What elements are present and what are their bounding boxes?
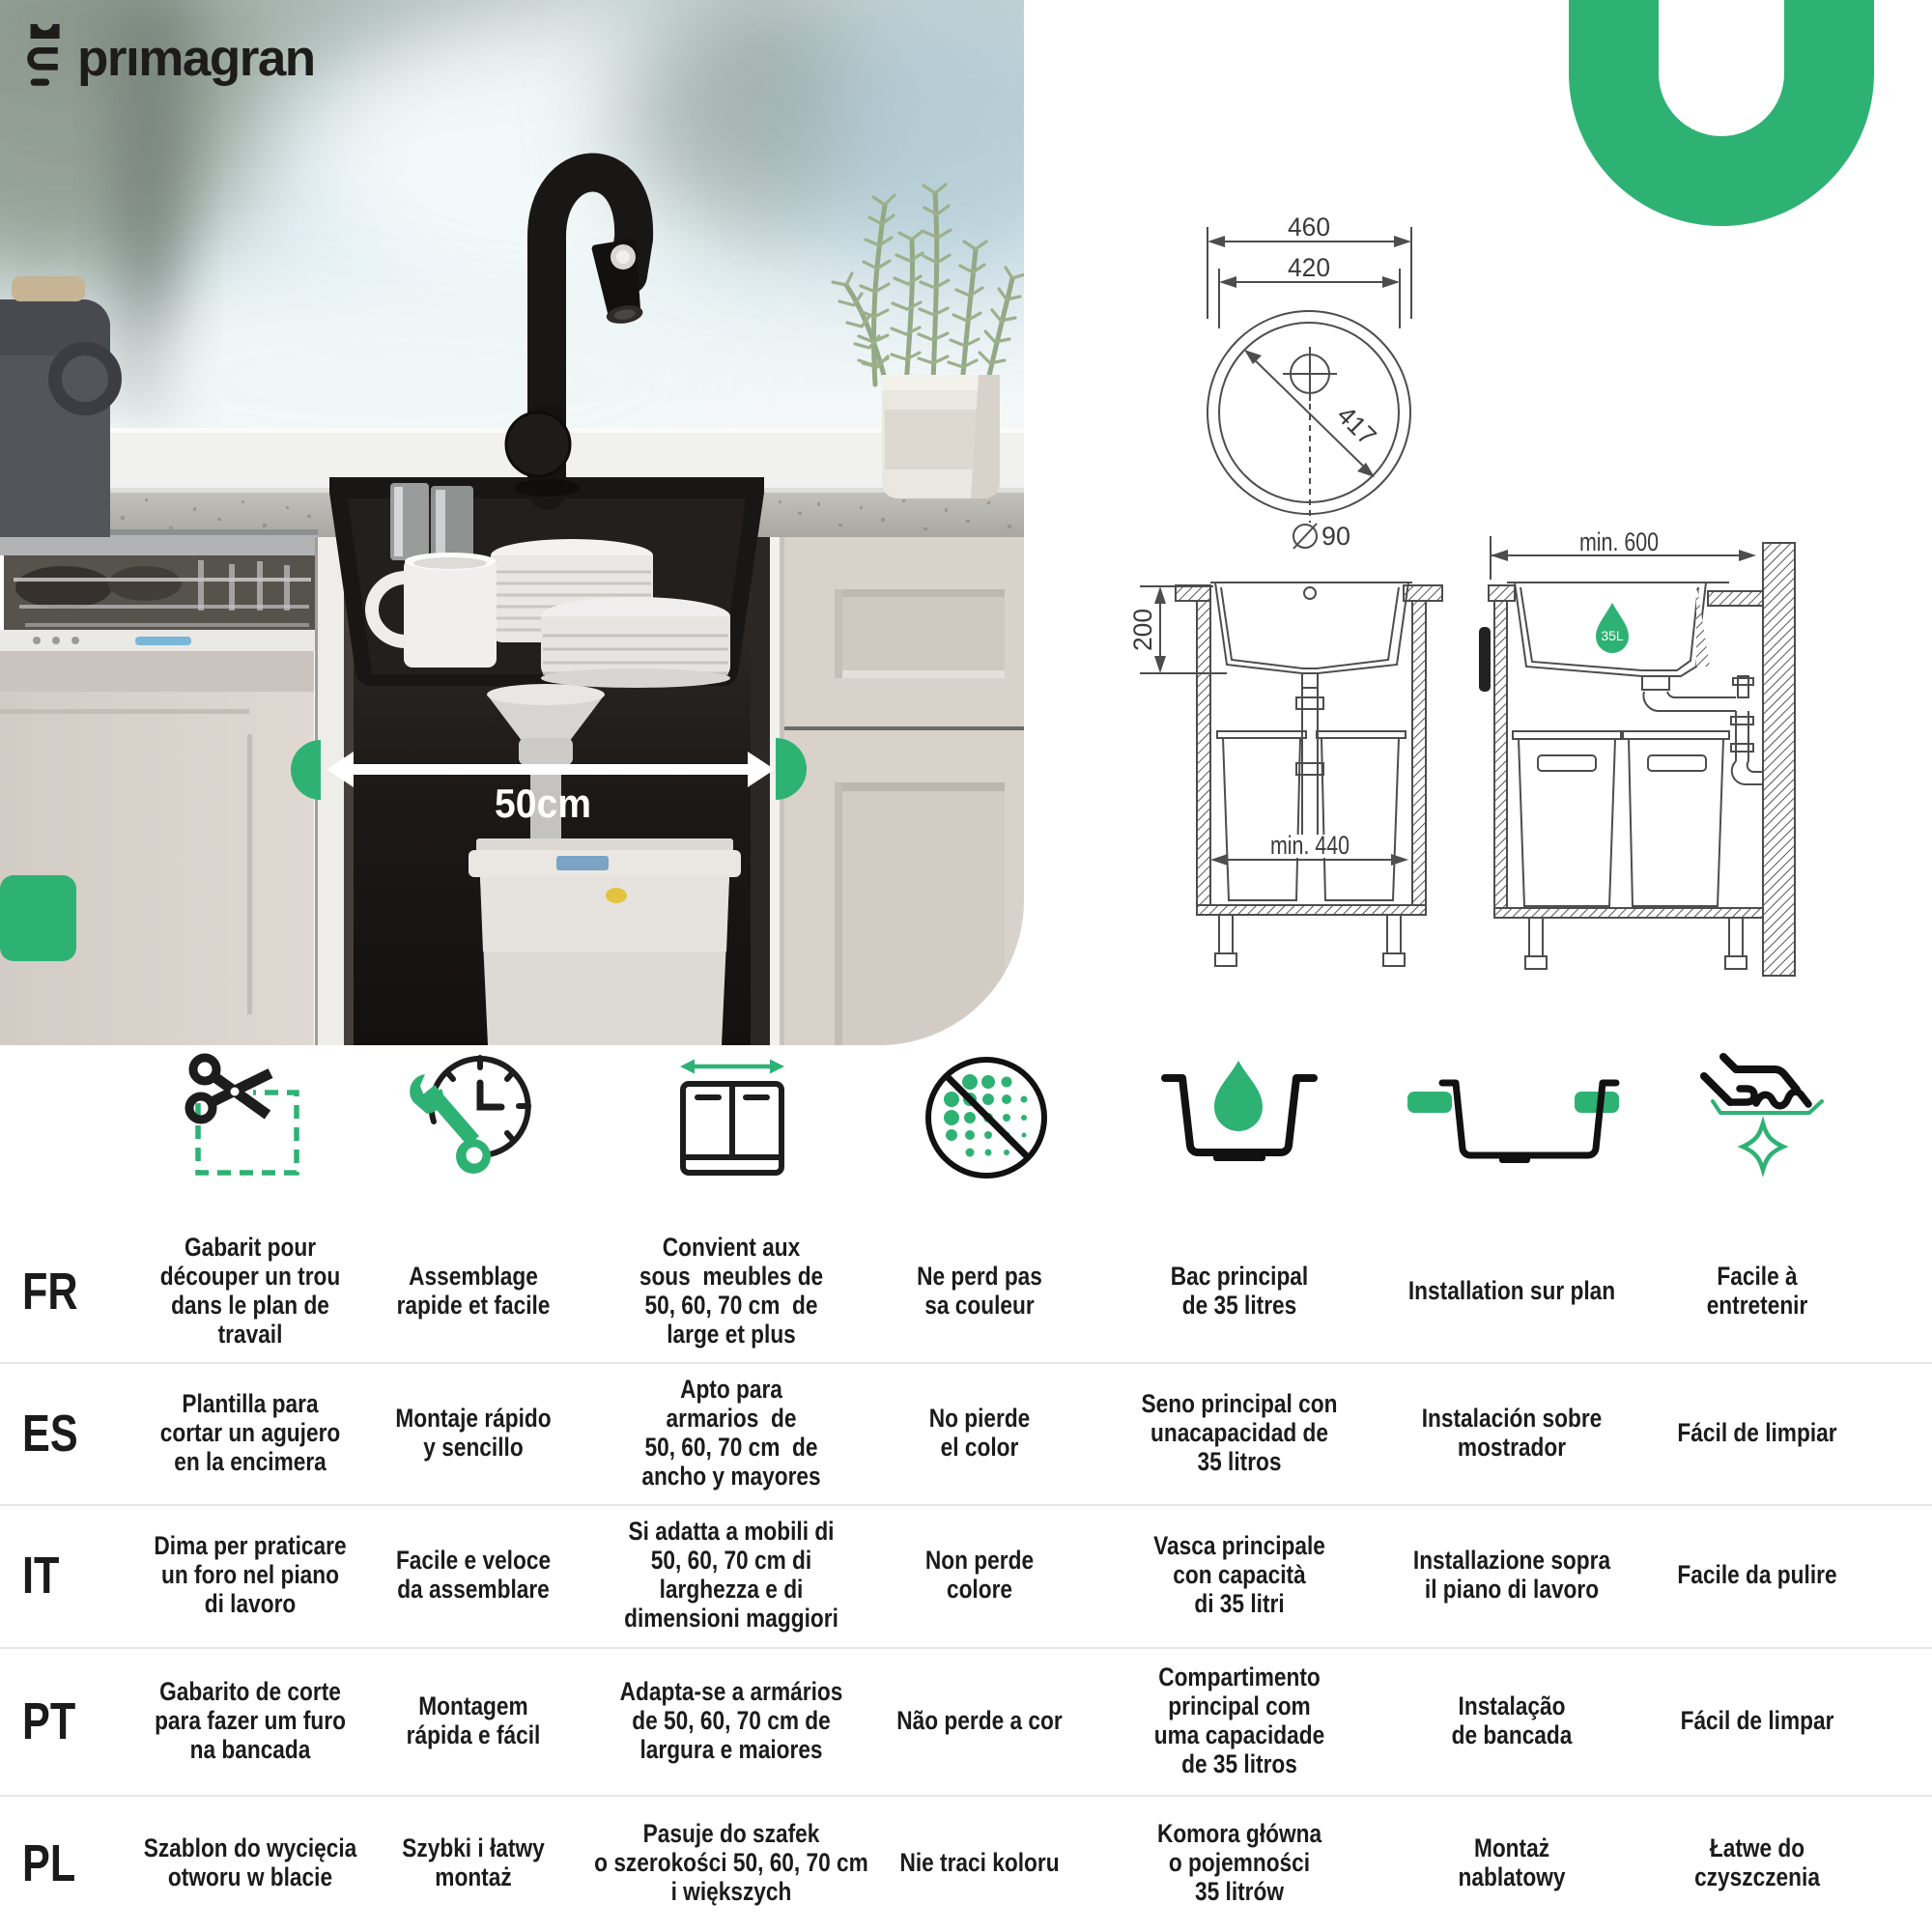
svg-text:50cm: 50cm: [495, 781, 591, 826]
svg-text:prımagran: prımagran: [77, 30, 315, 87]
svg-text:35L: 35L: [1601, 628, 1624, 643]
svg-text:420: 420: [1288, 253, 1330, 282]
svg-text:min. 440: min. 440: [1270, 831, 1350, 860]
svg-text:200: 200: [1128, 609, 1157, 651]
svg-text:min. 600: min. 600: [1579, 527, 1659, 556]
svg-text:90: 90: [1321, 522, 1350, 551]
svg-text:460: 460: [1288, 213, 1330, 241]
